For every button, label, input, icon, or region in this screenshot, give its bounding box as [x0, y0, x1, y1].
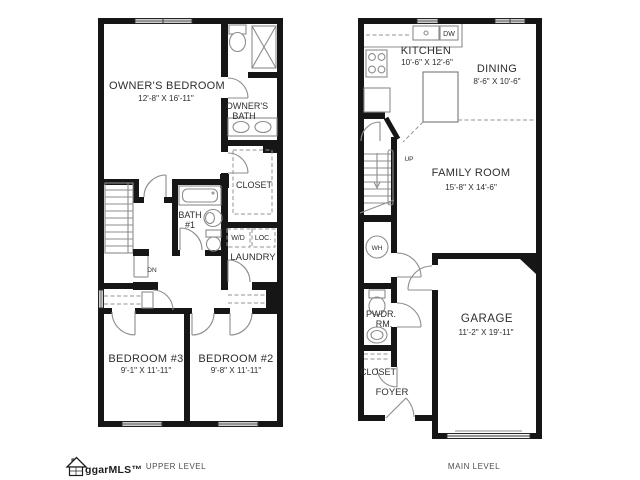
family-room-label: FAMILY ROOM — [432, 167, 511, 179]
bedroom3-label: BEDROOM #3 — [108, 353, 183, 365]
main-level-caption: MAIN LEVEL — [448, 462, 500, 471]
mls-logo-text: ggarMLS™ — [85, 464, 142, 476]
garage-door — [447, 431, 530, 438]
bedroom3-door — [112, 311, 135, 335]
owners-bath-toilet — [229, 25, 246, 52]
house-icon — [67, 458, 86, 476]
owners-bath-door — [228, 78, 248, 98]
dining-dims: 8'-6" X 10'-6" — [473, 77, 520, 86]
kitchen-label: KITCHEN — [401, 45, 451, 57]
family-room-dims: 15'-8" X 14'-6" — [445, 183, 497, 192]
walk-in-closet-label: CLOSET — [236, 180, 273, 190]
bath1-door — [180, 228, 202, 250]
bath1-sink — [204, 210, 222, 227]
owners-bedroom-dims: 12'-8" X 16'-11" — [138, 94, 194, 103]
bedroom2-dims: 9'-8" X 11'-11" — [211, 366, 262, 375]
garage-dims: 11'-2" X 19'-11" — [458, 328, 513, 337]
kitchen-dims: 10'-6" X 12'-6" — [401, 58, 453, 67]
floor-plan-sheet: OWNER'S BEDROOM 12'-8" X 16'-11" OWNER'S… — [0, 0, 640, 480]
water-heater-label: WH — [372, 245, 383, 252]
floor-plan-drawing: OWNER'S BEDROOM 12'-8" X 16'-11" OWNER'S… — [0, 0, 640, 480]
laundry-door — [228, 260, 250, 282]
bath1-label-1: BATH — [178, 210, 201, 220]
owners-bedroom-label: OWNER'S BEDROOM — [109, 80, 225, 92]
stove — [366, 50, 387, 77]
powder-door — [397, 303, 421, 327]
owners-bedroom-window — [135, 18, 192, 24]
bath1-label-2: #1 — [185, 220, 195, 230]
sheet-captions: UPPER LEVEL MAIN LEVEL — [146, 462, 500, 471]
main-level-plan: KITCHEN 10'-6" X 12'-6" DW DINING 8'-6" … — [358, 18, 542, 439]
upper-level-plan: OWNER'S BEDROOM 12'-8" X 16'-11" OWNER'S… — [98, 18, 283, 427]
garage-label: GARAGE — [461, 313, 513, 325]
washer-dryer-label: W/D — [231, 235, 245, 242]
hall-door — [397, 253, 421, 277]
bathtub — [179, 186, 221, 205]
lockers-label: LOC. — [255, 235, 271, 242]
main-labels: KITCHEN 10'-6" X 12'-6" DW DINING 8'-6" … — [360, 31, 521, 398]
bath1-toilet — [206, 230, 221, 251]
walk-in-closet-door — [228, 153, 248, 173]
bedroom3-closet-door — [142, 290, 173, 310]
garage-entry-door — [408, 266, 432, 290]
bedroom2-closet-door — [230, 313, 252, 335]
foyer-closet-label: CLOSET — [360, 367, 397, 377]
foyer-closet-shelves — [364, 354, 390, 359]
mls-logo: ggarMLS™ — [67, 458, 142, 477]
dining-label: DINING — [477, 63, 517, 75]
main-stairs — [360, 150, 394, 213]
owners-bath-label-1: OWNER'S — [226, 101, 268, 111]
bedroom3-window — [122, 422, 162, 426]
closet3-side-window — [99, 290, 103, 308]
room-boundary-dashes — [403, 120, 536, 142]
owners-bedroom-door — [144, 175, 166, 197]
laundry-label: LAUNDRY — [230, 252, 276, 263]
bedroom2-closet-shelves — [228, 295, 266, 303]
kitchen-island — [423, 72, 458, 122]
foyer-label: FOYER — [376, 387, 409, 398]
bedroom2-door — [192, 313, 214, 335]
bedroom3-dims: 9'-1" X 11'-11" — [121, 366, 172, 375]
stairs-dn-label: DN — [147, 267, 157, 274]
dining-window — [495, 18, 525, 24]
refrigerator — [364, 88, 390, 112]
shower-stall — [252, 26, 276, 68]
dishwasher-label: DW — [443, 31, 455, 38]
kitchen-window — [417, 19, 438, 23]
stairs-up-label: UP — [404, 156, 413, 163]
front-door-opening — [385, 415, 415, 421]
powder-room-label-2: RM. — [376, 319, 393, 329]
owners-bath-label-2: BATH — [232, 111, 255, 121]
powder-room-label-1: PWDR. — [366, 309, 396, 319]
upper-level-caption: UPPER LEVEL — [146, 462, 206, 471]
bedroom2-label: BEDROOM #2 — [198, 353, 273, 365]
bedroom3-closet-shelves — [104, 296, 148, 304]
bedroom2-window — [218, 422, 258, 426]
powder-sink — [367, 327, 387, 343]
